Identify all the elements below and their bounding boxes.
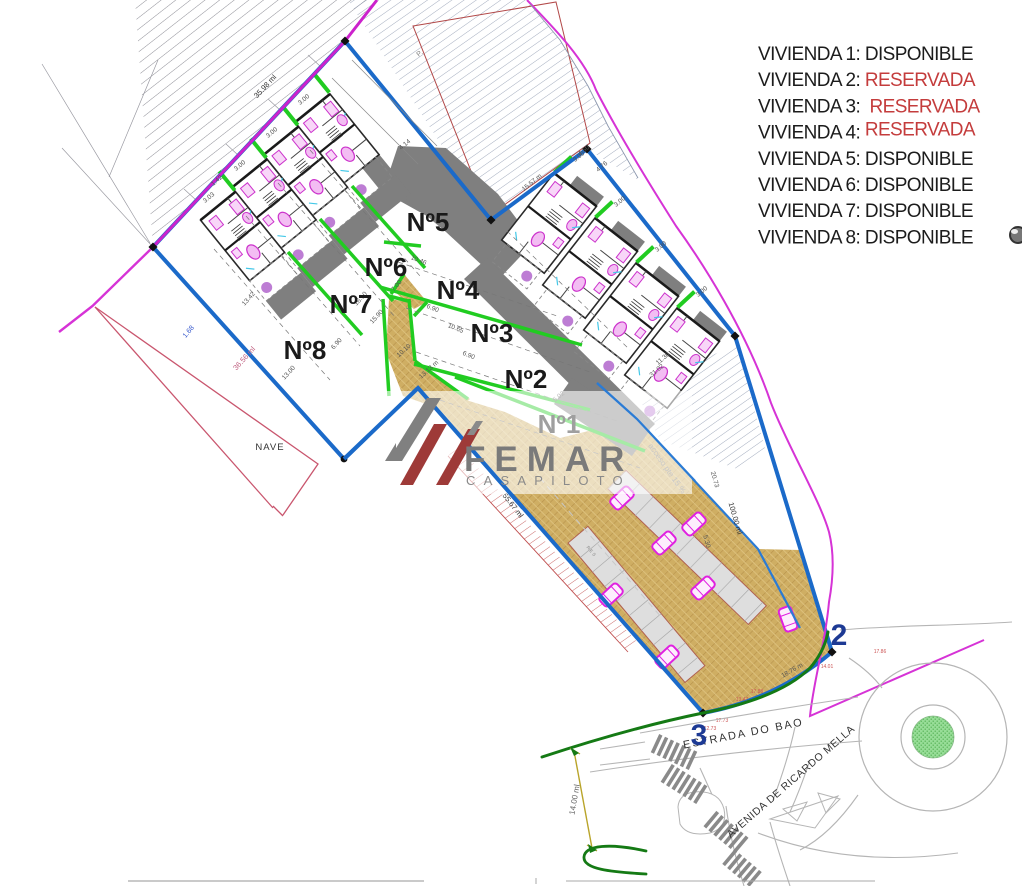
- svg-text:Nº8: Nº8: [284, 335, 327, 365]
- svg-text:14.01: 14.01: [821, 664, 834, 670]
- svg-text:3: 3: [691, 719, 708, 752]
- svg-text:VIVIENDA 7: DISPONIBLE: VIVIENDA 7: DISPONIBLE: [758, 201, 973, 222]
- svg-text:Nº4: Nº4: [437, 275, 480, 305]
- svg-text:VIVIENDA 8: DISPONIBLE: VIVIENDA 8: DISPONIBLE: [758, 227, 973, 248]
- svg-text:VIVIENDA 2: RESERVADA: VIVIENDA 2: RESERVADA: [758, 70, 976, 91]
- svg-text:Nº3: Nº3: [471, 318, 514, 348]
- svg-text:Nº7: Nº7: [330, 289, 373, 319]
- svg-text:VIVIENDA 3: RESERVADA: VIVIENDA 3: RESERVADA: [758, 96, 981, 117]
- svg-text:Nº5: Nº5: [407, 207, 450, 237]
- svg-text:NAVE: NAVE: [255, 442, 284, 453]
- svg-text:VIVIENDA 4: RESERVADA: VIVIENDA 4: RESERVADA: [758, 120, 976, 144]
- svg-text:Nº2: Nº2: [505, 364, 548, 394]
- svg-text:Nº1: Nº1: [538, 409, 581, 439]
- svg-text:Nº6: Nº6: [365, 252, 408, 282]
- svg-text:VIVIENDA 5: DISPONIBLE: VIVIENDA 5: DISPONIBLE: [758, 149, 973, 170]
- svg-text:17.86: 17.86: [874, 649, 887, 655]
- svg-text:17.88: 17.88: [751, 689, 764, 695]
- svg-text:2: 2: [831, 619, 848, 652]
- svg-text:VIVIENDA 6: DISPONIBLE: VIVIENDA 6: DISPONIBLE: [758, 175, 973, 196]
- svg-text:CASAPILOTO: CASAPILOTO: [466, 473, 631, 488]
- svg-text:VIVIENDA 1: DISPONIBLE: VIVIENDA 1: DISPONIBLE: [758, 44, 973, 65]
